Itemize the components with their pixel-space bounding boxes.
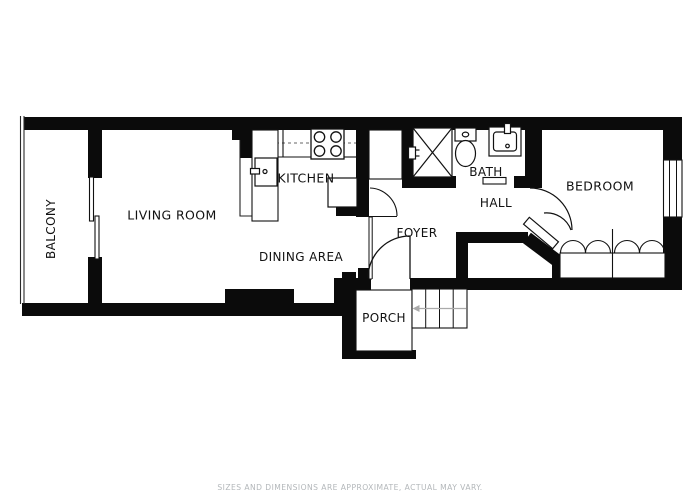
wall-kitchen-foyer <box>356 130 369 217</box>
room-label-living-room: LIVING ROOM <box>127 208 216 223</box>
dining-foyer-partition <box>369 217 372 279</box>
bath-fixtures <box>409 124 522 185</box>
room-label-bedroom: BEDROOM <box>566 179 634 194</box>
wall-top-right-corner <box>663 117 682 161</box>
bathroom-sink-icon <box>489 124 521 157</box>
wall-hall-bedroom <box>525 130 542 188</box>
room-label-balcony: BALCONY <box>44 199 58 259</box>
stove-icon <box>311 129 344 159</box>
floor-plan-image: BALCONY LIVING ROOM KITCHEN DINING AREA … <box>0 0 700 500</box>
room-label-dining-area: DINING AREA <box>259 250 343 264</box>
walls <box>22 117 682 359</box>
balcony-railing-icon <box>21 116 25 304</box>
floor-plan-drawing <box>0 0 700 500</box>
room-label-kitchen: KITCHEN <box>278 171 335 186</box>
wall-bottom-left <box>22 303 346 316</box>
room-label-hall: HALL <box>480 196 512 210</box>
wall-top <box>24 117 666 130</box>
wall-kitchen-stub-b <box>240 130 252 158</box>
window-icon <box>664 160 683 217</box>
wall-balcony-lower <box>88 257 102 307</box>
closet-door-swing-icon <box>369 188 397 217</box>
wall-hall-bottom <box>456 232 528 243</box>
foyer-closet <box>369 130 402 179</box>
entry-door-swing-icon <box>368 236 410 279</box>
wall-stairwell-left <box>456 243 468 290</box>
wall-bottom-right <box>410 278 682 290</box>
toilet-icon <box>455 128 476 167</box>
wall-bath-bottom-left <box>402 176 456 188</box>
wall-balcony-upper <box>88 130 102 178</box>
stairs-icon <box>412 289 467 328</box>
entry-threshold <box>372 279 409 291</box>
room-label-porch: PORCH <box>362 311 406 325</box>
wall-bottom-thick-section <box>225 289 294 304</box>
sliding-door-icon <box>90 177 100 259</box>
room-label-bath: BATH <box>469 165 502 179</box>
wall-porch-left <box>342 272 356 358</box>
shower-icon <box>409 128 453 177</box>
disclaimer-text: SIZES AND DIMENSIONS ARE APPROXIMATE, AC… <box>0 483 700 492</box>
bifold-closet-doors-icon <box>560 229 665 278</box>
room-label-foyer: FOYER <box>397 226 438 240</box>
kitchen-sink-icon <box>251 158 278 186</box>
